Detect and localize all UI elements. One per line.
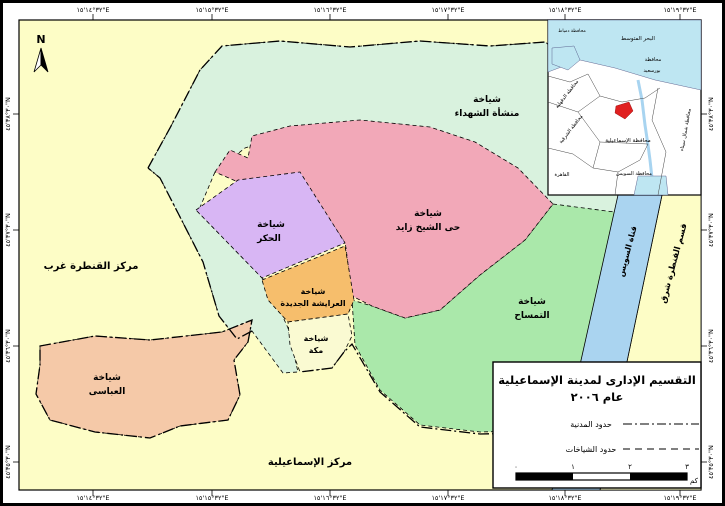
- coord-top-1: ٣٢°١٥'١٥"E: [195, 6, 228, 14]
- label-arayisha-2: العرايشة الجديدة: [280, 299, 346, 308]
- label-abbasi-2: العباسى: [89, 387, 126, 397]
- coord-bottom-2: ٣٢°١٦'١٥"E: [313, 494, 346, 502]
- coord-top-4: ٣٢°١٨'١٥"E: [548, 6, 581, 14]
- coord-left-0: ٣٠°٣٨'٤٥"N: [4, 97, 12, 131]
- label-zayed-2: حى الشيخ زايد: [396, 223, 461, 233]
- scale-tick-2: ٢: [628, 463, 632, 471]
- label-temsah-2: التمساح: [514, 311, 549, 321]
- inset-label-ismailia-gov: محافظة الإسماعيلية: [605, 138, 651, 144]
- scale-tick-3: ٣: [685, 463, 689, 471]
- label-arayisha-1: شياخة: [301, 287, 326, 296]
- coord-right-0: ٣٠°٣٨'٤٥"N: [707, 97, 715, 131]
- label-temsah-1: شياخة: [518, 297, 546, 307]
- scale-seg-2: [573, 473, 630, 480]
- label-shohadaa-1: شياخة: [473, 95, 501, 105]
- legend-item-city-label: حدود المدنية: [570, 420, 612, 429]
- coord-top-3: ٣٢°١٧'١٥"E: [431, 6, 464, 14]
- inset-label-portsaid-1: محافظة: [645, 57, 662, 63]
- scale-tick-1: ١: [571, 463, 575, 471]
- label-mecca-1: شياخة: [304, 334, 329, 343]
- inset-gulf: [634, 176, 668, 195]
- label-mecca-2: مكة: [309, 346, 324, 355]
- inset-label-suez-gov: محافظة السويس: [616, 171, 652, 177]
- map-document: مركز القنطرة غرب مركز الإسماعيلية شياخة …: [0, 0, 725, 506]
- coord-top-5: ٣٢°١٩'١٥"E: [663, 6, 696, 14]
- coord-bottom-1: ٣٢°١٥'١٥"E: [195, 494, 228, 502]
- coord-bottom-5: ٣٢°١٩'١٥"E: [663, 494, 696, 502]
- scale-tick-0: ٠: [514, 463, 518, 471]
- scale-unit: كم: [690, 477, 699, 485]
- coord-right-1: ٣٠°٣٧'٤٥"N: [707, 213, 715, 247]
- label-zayed-1: شياخة: [414, 209, 442, 219]
- scale-seg-1: [516, 473, 573, 480]
- inset-label-sea: البحر المتوسط: [621, 36, 655, 42]
- legend-title-1: التقسيم الإدارى لمدينة الإسماعيلية: [498, 373, 696, 387]
- legend-title-2: عام ٢٠٠٦: [571, 390, 624, 404]
- inset-label-damietta: محافظة دمياط: [558, 29, 586, 34]
- coord-bottom-0: ٣٢°١٤'١٥"E: [76, 494, 109, 502]
- coord-left-2: ٣٠°٣٦'٤٥"N: [4, 329, 12, 363]
- coord-top-2: ٣٢°١٦'١٥"E: [313, 6, 346, 14]
- label-qantara-gharb: مركز القنطرة غرب: [44, 261, 139, 272]
- scale-seg-3: [630, 473, 687, 480]
- inset-label-cairo: القاهرة: [555, 172, 570, 178]
- map-canvas: مركز القنطرة غرب مركز الإسماعيلية شياخة …: [0, 0, 725, 506]
- coord-left-3: ٣٠°٣٥'٤٥"N: [4, 445, 12, 479]
- label-ismailia-markaz: مركز الإسماعيلية: [268, 457, 352, 468]
- north-arrow-label: N: [36, 33, 45, 46]
- coord-bottom-3: ٣٢°١٧'١٥"E: [431, 494, 464, 502]
- coord-left-1: ٣٠°٣٧'٤٥"N: [4, 213, 12, 247]
- coord-right-3: ٣٠°٣٥'٤٥"N: [707, 445, 715, 479]
- coord-top-0: ٣٢°١٤'١٥"E: [76, 6, 109, 14]
- inset-map: البحر المتوسط محافظة دمياط محافظة الدقهل…: [548, 20, 701, 195]
- coord-right-2: ٣٠°٣٦'٤٥"N: [707, 329, 715, 363]
- label-shohadaa-2: منشأة الشهداء: [455, 107, 520, 119]
- coord-bottom-4: ٣٢°١٨'١٥"E: [548, 494, 581, 502]
- label-hakr-1: شياخة: [257, 220, 285, 230]
- legend: التقسيم الإدارى لمدينة الإسماعيلية عام ٢…: [493, 362, 701, 488]
- label-hakr-2: الحكر: [256, 234, 281, 244]
- label-abbasi-1: شياخة: [93, 373, 121, 383]
- inset-label-portsaid-2: بورسعيد: [643, 68, 660, 74]
- legend-item-sheyakha-label: حدود الشياخات: [566, 445, 617, 454]
